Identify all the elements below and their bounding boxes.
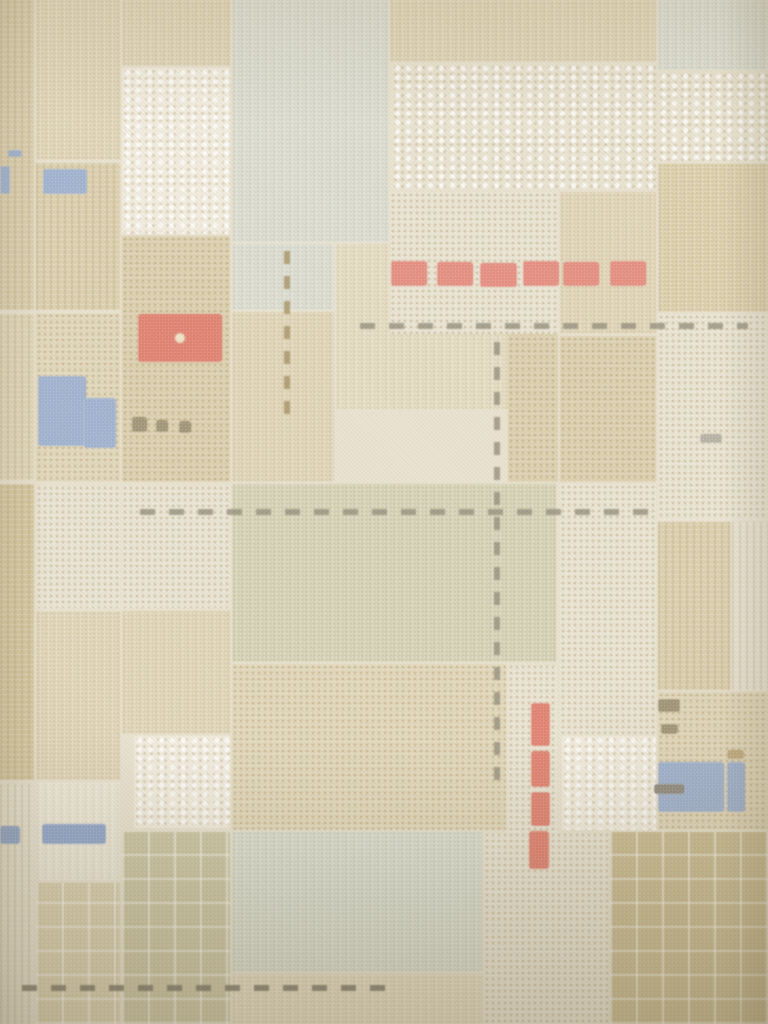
fabric-patch-col2-bottom bbox=[122, 832, 230, 1024]
wallpaper-photograph bbox=[0, 0, 768, 1024]
olive-mark-4 bbox=[658, 699, 680, 712]
fabric-patch-col1-low bbox=[36, 611, 120, 780]
olive-mark-2 bbox=[156, 420, 168, 432]
fabric-patch-mid-tan-left bbox=[232, 312, 334, 482]
fabric-patch-col2-low bbox=[122, 611, 230, 734]
gray-mark bbox=[700, 434, 722, 443]
red-stitch-block-1 bbox=[391, 261, 427, 286]
blue-band-main bbox=[42, 824, 106, 844]
blue-stitch-block-topleft bbox=[43, 169, 87, 194]
fabric-layer bbox=[0, 0, 768, 1024]
red-stitch-block-3 bbox=[480, 263, 517, 287]
red-stitch-block-4 bbox=[523, 261, 559, 286]
fabric-patch-bottom-bluegreen bbox=[232, 832, 482, 972]
fabric-patch-right-lace-1 bbox=[658, 72, 768, 162]
fabric-patch-right-strip-2 bbox=[732, 522, 768, 690]
fabric-patch-col4-mid bbox=[560, 336, 656, 482]
fabric-patch-col1-cream bbox=[36, 485, 120, 608]
red-stitch-block-5 bbox=[563, 262, 599, 286]
blue-stitch-dash bbox=[8, 150, 22, 157]
stitch-line-h3 bbox=[22, 985, 388, 991]
blue-stitch-sliver bbox=[0, 166, 10, 194]
tan-mark bbox=[727, 750, 744, 759]
fabric-patch-right-strip-1 bbox=[658, 522, 730, 690]
blue-block-l-main bbox=[38, 376, 86, 446]
fabric-patch-col2-lace bbox=[122, 68, 230, 234]
fabric-patch-bluegray-ext bbox=[232, 244, 334, 310]
olive-mark-1 bbox=[132, 417, 147, 432]
fabric-patch-left-column-olive bbox=[0, 484, 34, 780]
fabric-patch-col4-lace bbox=[562, 736, 656, 830]
fabric-patch-strip-mid bbox=[508, 312, 558, 482]
fabric-patch-col1-bottom bbox=[36, 883, 120, 1024]
stitch-line-h1 bbox=[360, 323, 748, 329]
olive-mark-3 bbox=[179, 421, 191, 433]
red-stitch-bar-1 bbox=[531, 703, 550, 746]
fabric-patch-right-olive bbox=[658, 164, 768, 312]
stitch-line-h2 bbox=[140, 509, 658, 515]
fabric-patch-topright-corner bbox=[658, 0, 768, 70]
fabric-patch-col2-white-lace bbox=[134, 736, 230, 828]
red-stitch-block-6 bbox=[610, 261, 646, 286]
fabric-patch-mid-tan-low bbox=[232, 664, 506, 830]
red-stitch-bar-4 bbox=[529, 831, 549, 869]
olive-mark-5 bbox=[661, 724, 678, 734]
red-stitch-block-2 bbox=[437, 262, 473, 286]
fabric-patch-top-tan-row bbox=[390, 0, 656, 62]
blue-strip-right bbox=[727, 762, 745, 812]
red-stitch-bar-3 bbox=[531, 792, 550, 826]
fabric-patch-left-column-mid bbox=[0, 314, 34, 480]
stitch-line-v2 bbox=[284, 246, 290, 414]
stitch-line-v1 bbox=[494, 330, 500, 780]
fabric-patch-top-lace bbox=[392, 64, 656, 190]
blue-block-l-ext bbox=[84, 398, 116, 448]
fabric-patch-right-lace-2 bbox=[658, 314, 768, 520]
blue-band-left bbox=[0, 826, 20, 844]
fabric-patch-col2-cream bbox=[122, 485, 230, 608]
red-stitch-box bbox=[138, 314, 222, 362]
fabric-patch-top-bluegray bbox=[232, 0, 388, 242]
dark-dash bbox=[654, 784, 684, 794]
red-stitch-bar-2 bbox=[531, 751, 550, 787]
fabric-patch-col1-top bbox=[36, 0, 120, 160]
fabric-patch-bottomright-corner bbox=[610, 832, 768, 1024]
fabric-patch-col4-cream bbox=[560, 484, 656, 734]
fabric-patch-col2-top bbox=[122, 0, 230, 66]
fabric-patch-bottom-strip bbox=[232, 974, 482, 1024]
